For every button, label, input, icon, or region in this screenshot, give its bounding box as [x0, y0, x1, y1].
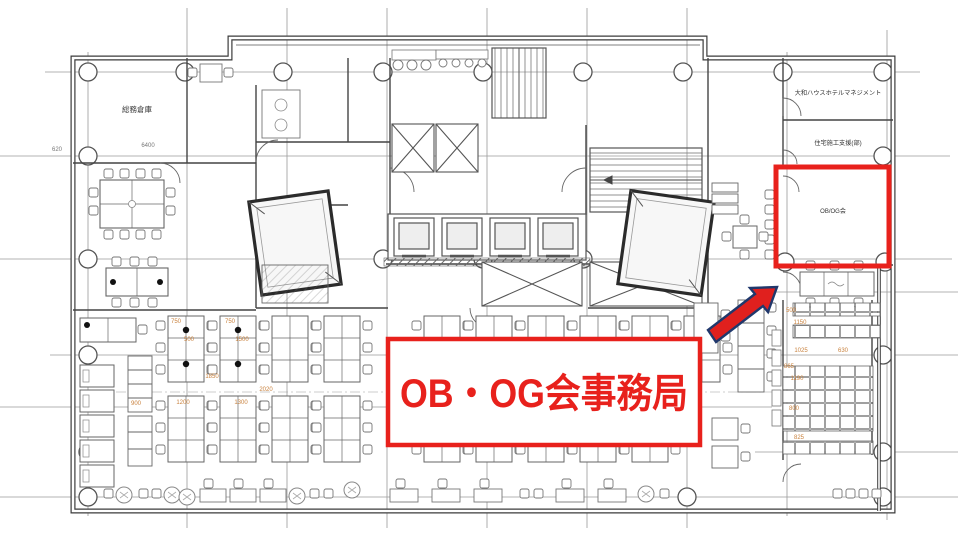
- callout-box: OB・OG会事務局: [388, 339, 700, 445]
- desk-cluster: [156, 316, 216, 382]
- dimension-label: 500: [184, 337, 195, 343]
- highlighted-room-outline: [776, 167, 889, 266]
- room-label-obog: OB/OG会: [820, 207, 846, 215]
- desk-cluster: [312, 396, 372, 462]
- callout-label: OB・OG会事務局: [400, 372, 688, 416]
- core-block: [249, 48, 714, 306]
- dimension-label: 750: [225, 319, 236, 325]
- desk-cluster: [260, 396, 320, 462]
- shelving: [128, 356, 152, 466]
- dimension-label: 800: [789, 406, 800, 412]
- dimension-label: 1190: [791, 376, 805, 382]
- floor-plan-drawing: 総務倉庫 大和ハウスホテルマネジメント 住宅施工支援(部) OB/OG会 620…: [0, 0, 960, 540]
- small-table: [200, 64, 222, 82]
- desk-cluster: [260, 316, 320, 382]
- dimension-label: 750: [171, 319, 182, 325]
- dimension-label: 825: [794, 435, 805, 441]
- shaft-cross: [392, 124, 478, 172]
- dimension-labels-gray: 620 6400: [52, 143, 155, 153]
- wall-cabinets: [772, 330, 781, 426]
- dimension-label: 6400: [141, 143, 155, 149]
- dimension-label: 1850: [205, 374, 219, 380]
- dimension-label: 1025: [794, 348, 808, 354]
- dimension-label: 620: [52, 147, 63, 153]
- dimension-label: 1200: [176, 400, 190, 406]
- service-room: [262, 265, 328, 303]
- right-zone: [772, 261, 880, 454]
- dimension-label: 630: [838, 348, 849, 354]
- tilted-room-right: [618, 191, 714, 296]
- floor-plan: 総務倉庫 大和ハウスホテルマネジメント 住宅施工支援(部) OB/OG会 620…: [0, 0, 960, 540]
- dimension-label: 865: [784, 364, 795, 370]
- dimension-label: 1150: [794, 320, 808, 326]
- dimension-label: 900: [131, 401, 142, 407]
- meeting-room-furniture: [89, 64, 233, 307]
- conference-table: [89, 169, 175, 239]
- desk-cluster: [312, 316, 372, 382]
- dimension-label: 500: [786, 308, 797, 314]
- room-label-storage: 総務倉庫: [122, 104, 152, 114]
- dimension-label: 2020: [259, 387, 273, 393]
- conference-table: [106, 257, 168, 307]
- bottom-strip: [104, 479, 881, 505]
- elevator-bank: [388, 214, 586, 260]
- dimension-label: 1300: [234, 400, 248, 406]
- desk-cluster: [208, 316, 268, 382]
- room-label-hotel-management: 大和ハウスホテルマネジメント: [795, 89, 882, 97]
- room-label-housing-support: 住宅施工支援(部): [814, 139, 861, 147]
- dimension-label: 1500: [235, 337, 249, 343]
